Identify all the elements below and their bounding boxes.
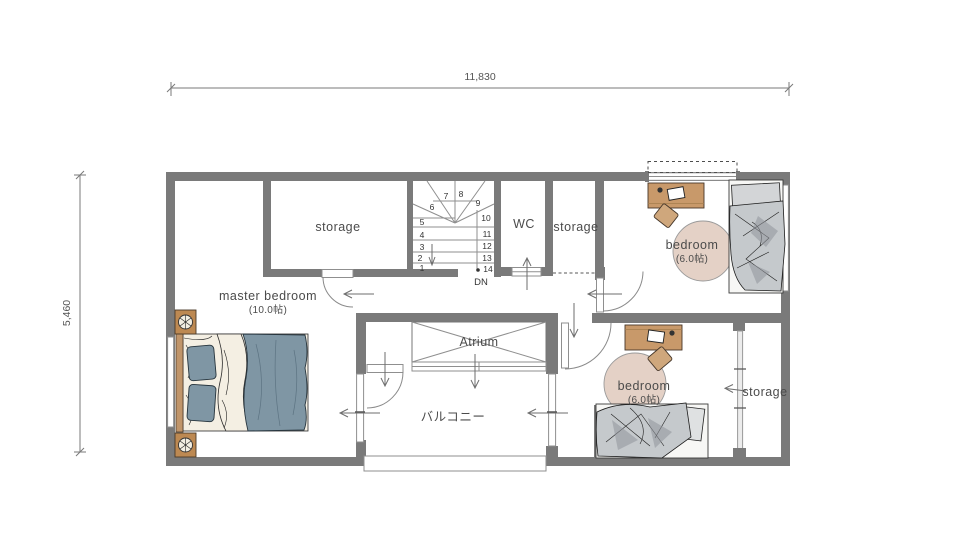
bed bbox=[729, 180, 785, 293]
stair-step-6: 6 bbox=[430, 202, 435, 212]
bedroom-br-door-arrow bbox=[570, 303, 578, 337]
label-bedroom-top-right-size: (6.0帖) bbox=[676, 252, 708, 265]
stair-step-3: 3 bbox=[420, 242, 425, 252]
storage-door-arrow bbox=[344, 290, 374, 298]
bedroom-br-door-leaf bbox=[562, 323, 569, 368]
stair-step-5: 5 bbox=[420, 217, 425, 227]
stair-down-arrow bbox=[429, 244, 435, 265]
stair-step-4: 4 bbox=[420, 230, 425, 240]
dimension-left-label: 5,460 bbox=[61, 300, 73, 326]
bedroom-tr-door-leaf bbox=[597, 278, 604, 312]
atrium bbox=[412, 322, 546, 388]
mug bbox=[657, 187, 662, 192]
stair-step-13: 13 bbox=[482, 253, 492, 263]
stair-step-12: 12 bbox=[482, 241, 492, 251]
left-wall-window bbox=[168, 337, 174, 427]
label-balcony: バルコニー bbox=[421, 410, 486, 424]
stair-step-7: 7 bbox=[444, 191, 449, 201]
stair-step-8: 8 bbox=[459, 189, 464, 199]
bedroom-top-right-furniture bbox=[648, 180, 785, 293]
label-storage-top-left: storage bbox=[315, 220, 360, 234]
balcony-parapet bbox=[364, 456, 546, 471]
dimension-left: 5,460 bbox=[61, 171, 86, 456]
mug bbox=[669, 330, 674, 335]
label-bedroom-bottom: bedroom bbox=[618, 379, 671, 393]
label-wc: WC bbox=[513, 217, 535, 231]
nightstand-top bbox=[175, 310, 196, 334]
bed-headboard bbox=[176, 333, 183, 432]
master-bed bbox=[176, 333, 308, 432]
bedroom-tr-door-arrow bbox=[588, 290, 622, 298]
bed-pillow bbox=[187, 384, 216, 422]
dormer-dashed-outline bbox=[648, 162, 737, 173]
stair-down-label: DN bbox=[474, 277, 488, 288]
stair-step-11: 11 bbox=[483, 229, 492, 239]
label-master-bedroom: master bedroom bbox=[219, 289, 317, 303]
label-bedroom-bottom-size: (6.0帖) bbox=[628, 393, 660, 406]
label-atrium: Atrium bbox=[459, 335, 498, 349]
label-bedroom-top-right: bedroom bbox=[666, 238, 719, 252]
storage-door-leaf bbox=[322, 270, 353, 278]
bed-blanket bbox=[243, 334, 307, 431]
label-storage-top-middle: storage bbox=[553, 220, 598, 234]
floor-plan-drawing: 11,830 5,460 bbox=[0, 0, 953, 558]
label-master-bedroom-size: (10.0帖) bbox=[249, 303, 287, 316]
laptop bbox=[647, 330, 664, 343]
bed-pillow bbox=[187, 345, 217, 381]
bed bbox=[596, 403, 708, 458]
laptop bbox=[667, 187, 685, 201]
balcony-right-arrow bbox=[528, 409, 568, 417]
label-storage-bottom-right: storage bbox=[742, 385, 787, 399]
stair-step-1: 1 bbox=[420, 263, 425, 273]
dimension-top: 11,830 bbox=[167, 71, 793, 96]
dimension-top-label: 11,830 bbox=[464, 71, 495, 83]
stair-step-10: 10 bbox=[481, 213, 491, 223]
floor-plan-page: 11,830 5,460 bbox=[0, 0, 953, 558]
nightstand-bottom bbox=[175, 433, 196, 457]
stair-step-2: 2 bbox=[418, 253, 423, 263]
stair-walkline-start bbox=[476, 268, 480, 272]
balcony-left-window bbox=[357, 374, 364, 442]
balcony-right-window bbox=[549, 374, 556, 446]
stair-step-9: 9 bbox=[476, 198, 481, 208]
stair-step-14: 14 bbox=[483, 264, 493, 274]
